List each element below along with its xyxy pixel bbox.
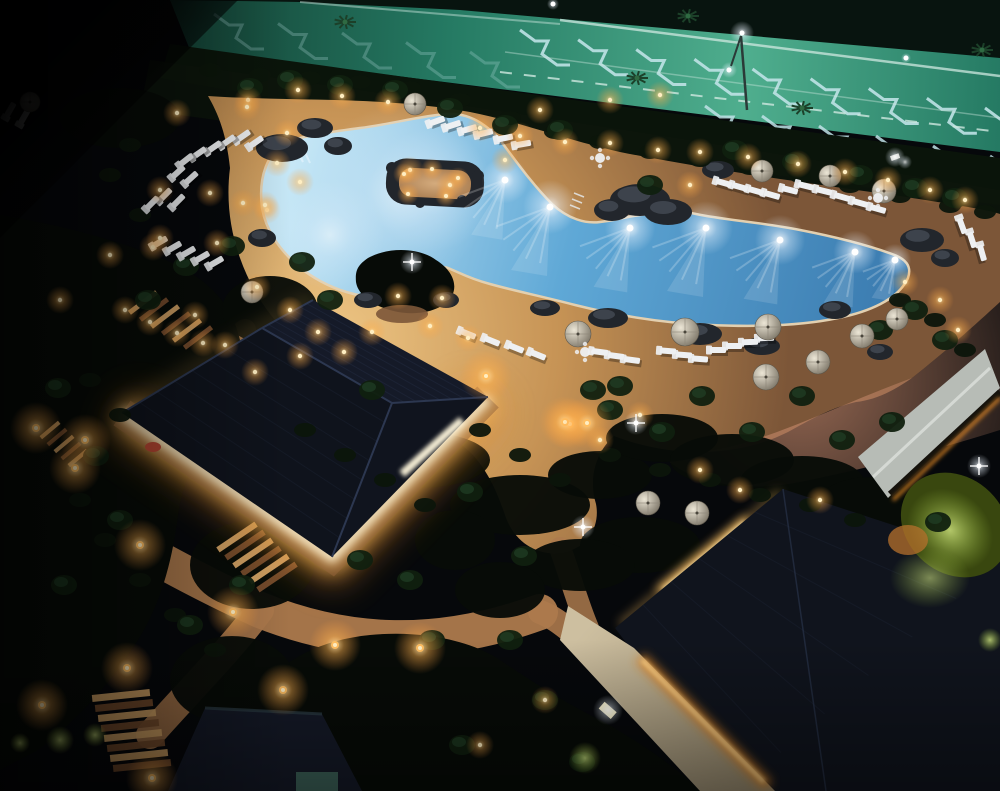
floodlight-glow bbox=[898, 155, 912, 169]
island-torch bbox=[402, 172, 406, 176]
tree-highlight bbox=[928, 514, 942, 524]
bush bbox=[509, 448, 531, 462]
path-lamp-core bbox=[484, 374, 488, 378]
garden-light bbox=[843, 170, 847, 174]
rock-highlight bbox=[328, 138, 343, 147]
umbrella-pole bbox=[765, 376, 768, 379]
street-lamp bbox=[740, 31, 745, 36]
bush bbox=[649, 463, 671, 477]
sparkle-core bbox=[581, 525, 586, 530]
rock-highlight bbox=[593, 310, 615, 320]
garden-light bbox=[563, 140, 567, 144]
garden-light bbox=[370, 330, 374, 334]
umbrella bbox=[404, 93, 426, 115]
tree-highlight bbox=[832, 432, 846, 442]
bush bbox=[954, 343, 976, 357]
table-chair bbox=[583, 358, 587, 362]
palm-crown bbox=[800, 106, 805, 111]
tree-highlight bbox=[640, 177, 654, 187]
street-lamp bbox=[727, 68, 732, 73]
garden-light bbox=[598, 438, 602, 442]
light-core bbox=[703, 225, 710, 232]
tree-highlight bbox=[292, 254, 306, 264]
bush bbox=[294, 423, 316, 437]
resort-night-aerial-photo bbox=[0, 0, 1000, 791]
umbrella bbox=[886, 308, 908, 330]
garden-light bbox=[738, 488, 742, 492]
garden-light bbox=[298, 180, 302, 184]
umbrella-pole bbox=[817, 361, 820, 364]
chair-back bbox=[722, 342, 728, 351]
garden-light bbox=[440, 296, 444, 300]
garden-light bbox=[938, 298, 942, 302]
tree-highlight bbox=[460, 484, 474, 494]
umbrella-pole bbox=[861, 335, 864, 338]
bush bbox=[844, 513, 866, 527]
rock-highlight bbox=[870, 345, 884, 353]
table-chair bbox=[876, 204, 880, 208]
garden-light bbox=[796, 162, 800, 166]
rock-highlight bbox=[534, 301, 551, 309]
chair-back bbox=[738, 338, 744, 347]
table-chair bbox=[590, 156, 594, 160]
bush bbox=[334, 448, 356, 462]
umbrella-pole bbox=[577, 333, 580, 336]
garden-light bbox=[608, 98, 612, 102]
garden-light bbox=[928, 188, 932, 192]
garden-light bbox=[386, 100, 390, 104]
garden-light bbox=[698, 150, 702, 154]
sparkle-light bbox=[571, 515, 595, 539]
umbrella-pole bbox=[684, 331, 687, 334]
sparkle-light bbox=[967, 454, 991, 478]
rock-highlight bbox=[935, 250, 950, 259]
light-core bbox=[627, 225, 634, 232]
bush bbox=[469, 423, 491, 437]
table-chair bbox=[591, 350, 595, 354]
garden-light bbox=[688, 183, 692, 187]
tree-highlight bbox=[742, 424, 756, 434]
rock-highlight bbox=[599, 201, 619, 212]
umbrella-pole bbox=[414, 103, 417, 106]
sparkle-core bbox=[634, 421, 639, 426]
chair-back bbox=[706, 346, 712, 355]
palm-crown bbox=[980, 48, 985, 53]
garden-light bbox=[296, 88, 300, 92]
garden-light bbox=[818, 498, 822, 502]
island-torch bbox=[444, 194, 448, 198]
garden-light bbox=[608, 141, 612, 145]
island-torch bbox=[406, 192, 410, 196]
lit-garden-2 bbox=[890, 548, 970, 608]
table-chair bbox=[884, 196, 888, 200]
garden-light bbox=[746, 155, 750, 159]
sparkle-core bbox=[977, 464, 982, 469]
light-core bbox=[547, 204, 554, 211]
chair-back bbox=[672, 350, 679, 359]
garden-light bbox=[316, 330, 320, 334]
garden-light bbox=[503, 158, 507, 162]
garden-light bbox=[298, 354, 302, 358]
umbrella bbox=[850, 324, 874, 348]
street-lamp bbox=[551, 2, 556, 7]
tree-highlight bbox=[610, 378, 624, 388]
garden-light bbox=[658, 93, 662, 97]
garden-light bbox=[518, 134, 522, 138]
umbrella-pole bbox=[767, 326, 770, 329]
tree-highlight bbox=[320, 292, 334, 302]
veg-blob bbox=[415, 510, 495, 570]
tree-highlight bbox=[514, 548, 528, 558]
tree-highlight bbox=[400, 572, 414, 582]
rock-highlight bbox=[358, 293, 373, 301]
chair-back bbox=[619, 354, 626, 364]
tree-highlight bbox=[692, 388, 706, 398]
palm-crown bbox=[686, 14, 691, 19]
tree-highlight bbox=[583, 382, 597, 392]
palm-crown bbox=[635, 76, 640, 81]
chair-body bbox=[692, 355, 708, 362]
umbrella bbox=[671, 318, 699, 346]
table-chair bbox=[575, 350, 579, 354]
bush bbox=[414, 498, 436, 512]
bush bbox=[374, 473, 396, 487]
umbrella bbox=[565, 321, 591, 347]
tree-highlight bbox=[440, 100, 454, 110]
garden-light bbox=[466, 336, 470, 340]
island-torch bbox=[430, 167, 434, 171]
island-torch bbox=[456, 176, 460, 180]
bush bbox=[974, 205, 996, 219]
garden-light bbox=[428, 324, 432, 328]
tree-highlight bbox=[350, 552, 364, 562]
garden-light bbox=[538, 108, 542, 112]
scene-canvas bbox=[0, 0, 1000, 791]
rock-highlight bbox=[650, 201, 676, 214]
tree-highlight bbox=[362, 382, 376, 392]
bottom-vignette bbox=[0, 600, 1000, 791]
rock-highlight bbox=[906, 230, 930, 242]
tree-highlight bbox=[905, 302, 919, 312]
chair-back bbox=[656, 346, 663, 355]
tree-highlight bbox=[792, 388, 806, 398]
tree-highlight bbox=[882, 414, 896, 424]
street-lamp bbox=[904, 56, 909, 61]
garden-light bbox=[886, 178, 890, 182]
umbrella-pole bbox=[647, 502, 650, 505]
umbrella-pole bbox=[829, 175, 832, 178]
umbrella bbox=[685, 501, 709, 525]
garden-light bbox=[342, 350, 346, 354]
tree-highlight bbox=[495, 117, 509, 127]
garden-light bbox=[956, 328, 960, 332]
garden-light bbox=[656, 148, 660, 152]
umbrella-pole bbox=[896, 318, 899, 321]
table-chair bbox=[583, 342, 587, 346]
table bbox=[580, 347, 590, 357]
umbrella-pole bbox=[761, 170, 764, 173]
umbrella-pole bbox=[696, 512, 699, 515]
rock-highlight bbox=[823, 302, 841, 311]
garden-light bbox=[340, 94, 344, 98]
garden-light bbox=[963, 198, 967, 202]
umbrella bbox=[753, 364, 779, 390]
garden-light bbox=[396, 294, 400, 298]
light-core bbox=[852, 249, 859, 256]
bush bbox=[924, 313, 946, 327]
chair-back bbox=[688, 354, 695, 363]
table bbox=[873, 193, 883, 203]
garden-light bbox=[698, 468, 702, 472]
light-core bbox=[892, 257, 899, 264]
table-chair bbox=[868, 196, 872, 200]
umbrella bbox=[636, 491, 660, 515]
garden-light bbox=[478, 126, 482, 130]
lit-garden-orange bbox=[888, 525, 928, 555]
tree-highlight bbox=[652, 424, 666, 434]
sparkle-light bbox=[400, 250, 424, 274]
palm-crown bbox=[343, 20, 348, 25]
umbrella bbox=[806, 350, 830, 374]
umbrella bbox=[755, 314, 781, 340]
path-lamp-core bbox=[585, 421, 589, 425]
sparkle-core bbox=[410, 260, 415, 265]
rock-highlight bbox=[302, 120, 322, 130]
bush bbox=[549, 473, 571, 487]
light-core bbox=[777, 237, 784, 244]
sparkle-light bbox=[624, 411, 648, 435]
table-chair bbox=[598, 164, 602, 168]
chair-back bbox=[603, 350, 610, 360]
light-core bbox=[502, 177, 509, 184]
garden-light bbox=[903, 280, 907, 284]
